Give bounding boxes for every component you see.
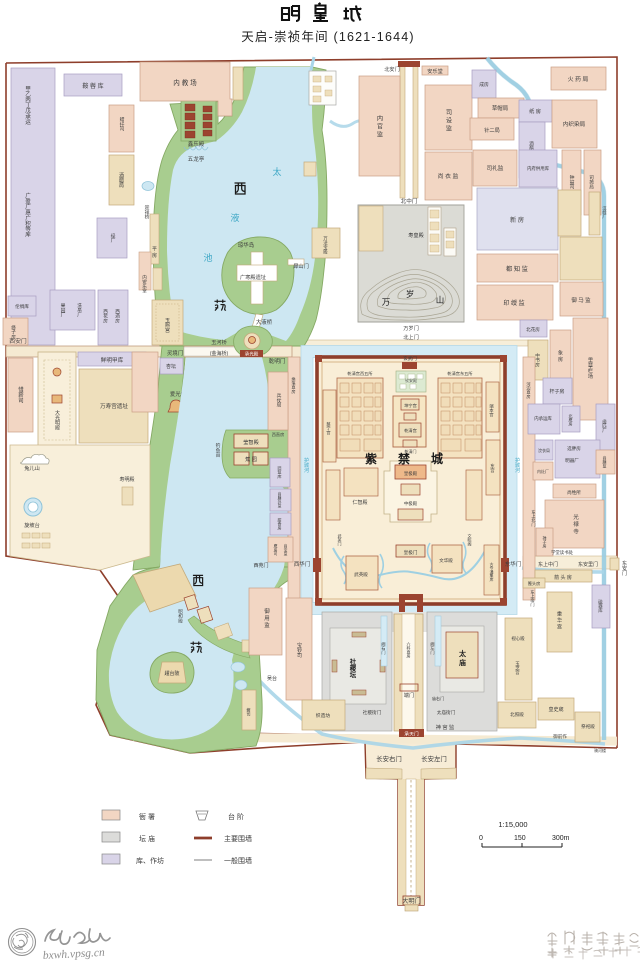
- svg-text:台 阶: 台 阶: [228, 812, 244, 821]
- svg-text:乘笔直房: 乘笔直房: [291, 375, 297, 395]
- svg-text:乾明门: 乾明门: [269, 357, 286, 365]
- svg-text:尚牲所: 尚牲所: [567, 489, 581, 496]
- svg-text:蕉 园: 蕉 园: [245, 455, 257, 463]
- svg-text:东上南门: 东上南门: [531, 588, 536, 608]
- svg-text:选胖房: 选胖房: [567, 445, 581, 452]
- svg-text:1:15,000: 1:15,000: [498, 820, 527, 829]
- svg-text:玉芝宫: 玉芝宫: [515, 661, 521, 676]
- svg-text:玉熙宫: 玉熙宫: [164, 318, 170, 334]
- svg-text:箭 头 房: 箭 头 房: [554, 574, 572, 581]
- svg-text:岁: 岁: [406, 289, 415, 299]
- svg-text:惜薪司: 惜薪司: [17, 386, 24, 404]
- svg-text:禁: 禁: [398, 451, 410, 466]
- svg-text:紫: 紫: [365, 451, 377, 466]
- svg-text:东上北门: 东上北门: [531, 508, 537, 528]
- svg-text:玄武门: 玄武门: [403, 355, 417, 362]
- svg-text:广盈广惠广积等库: 广盈广惠广积等库: [24, 192, 31, 239]
- svg-text:纸 房: 纸 房: [529, 107, 541, 115]
- svg-text:庙右门: 庙右门: [432, 695, 445, 702]
- svg-text:视心殿: 视心殿: [511, 635, 525, 642]
- svg-text:内 官 监: 内 官 监: [376, 114, 383, 137]
- svg-text:天启-崇祯年间 (1621-1644): 天启-崇祯年间 (1621-1644): [241, 30, 415, 44]
- svg-text:昭和殿: 昭和殿: [178, 609, 184, 624]
- svg-text:中极殿: 中极殿: [404, 500, 418, 507]
- svg-text:0: 0: [479, 835, 483, 842]
- svg-text:东华门: 东华门: [505, 560, 521, 568]
- svg-text:鲜明甲库: 鲜明甲库: [101, 356, 124, 364]
- svg-text:万岁门: 万岁门: [403, 324, 419, 332]
- svg-text:仁智殿: 仁智殿: [352, 499, 367, 506]
- svg-text:缎匹厂: 缎匹厂: [602, 418, 608, 434]
- svg-text:长安左门: 长安左门: [421, 754, 447, 763]
- svg-text:皇极门: 皇极门: [404, 549, 418, 556]
- svg-text:东安门: 东安门: [621, 560, 627, 577]
- svg-text:池: 池: [203, 252, 212, 263]
- svg-text:磁器库: 磁器库: [598, 598, 604, 614]
- svg-text:端门: 端门: [404, 691, 414, 699]
- svg-text:300m: 300m: [552, 835, 570, 842]
- svg-text:伦绸库: 伦绸库: [15, 303, 29, 310]
- svg-text:甜食房: 甜食房: [278, 517, 283, 531]
- svg-text:衙 署: 衙 署: [139, 812, 155, 821]
- svg-text:成房: 成房: [479, 81, 489, 88]
- svg-text:山: 山: [436, 295, 445, 305]
- svg-text:织造坊: 织造坊: [316, 712, 331, 719]
- svg-text:甲乙丙丁戊承运: 甲乙丙丁戊承运: [24, 85, 31, 126]
- svg-text:寿明殿: 寿明殿: [119, 476, 134, 483]
- svg-text:内府供用库: 内府供用库: [527, 165, 550, 172]
- svg-text:内灶厂: 内灶厂: [537, 468, 549, 474]
- svg-text:鞍 辔 库: 鞍 辔 库: [82, 82, 103, 90]
- svg-text:太 庙: 太 庙: [458, 649, 466, 667]
- svg-text:内 教 场: 内 教 场: [173, 78, 197, 87]
- svg-text:护城河: 护城河: [514, 457, 520, 473]
- svg-text:犀山门: 犀山门: [293, 262, 309, 270]
- svg-text:广寒殿遗址: 广寒殿遗址: [240, 273, 266, 281]
- svg-text:尚宝监: 尚宝监: [283, 544, 288, 556]
- svg-text:河边直房: 河边直房: [526, 380, 532, 400]
- svg-text:绦子房: 绦子房: [11, 324, 17, 340]
- svg-text:北上门: 北上门: [403, 333, 419, 341]
- svg-text:万寿宫遗址: 万寿宫遗址: [100, 402, 128, 410]
- svg-text:东上中门: 东上中门: [538, 561, 558, 568]
- svg-text:乾清宫东五所: 乾清宫东五所: [447, 370, 472, 377]
- svg-text:篦头房: 篦头房: [528, 580, 541, 587]
- svg-text:(金海桥): (金海桥): [210, 350, 229, 357]
- svg-text:新 房: 新 房: [510, 216, 524, 224]
- svg-text:阙右门: 阙右门: [382, 640, 387, 655]
- svg-text:北照殿: 北照殿: [510, 711, 524, 718]
- svg-text:琼华岛: 琼华岛: [238, 241, 254, 249]
- svg-text:都 知 监: 都 知 监: [506, 265, 528, 273]
- svg-text:东宫: 东宫: [490, 462, 496, 473]
- svg-text:重 华 宫: 重 华 宫: [556, 609, 562, 630]
- svg-text:150: 150: [514, 835, 526, 842]
- svg-text:北安门: 北安门: [384, 65, 400, 73]
- svg-text:钓鱼台: 钓鱼台: [215, 442, 220, 459]
- svg-text:里草栏场: 里草栏场: [587, 357, 593, 380]
- svg-text:司礼监: 司礼监: [487, 164, 504, 172]
- svg-text:文昭阁: 文昭阁: [468, 533, 473, 547]
- svg-text:北花房: 北花房: [526, 326, 540, 333]
- svg-text:大液桥: 大液桥: [256, 318, 273, 326]
- svg-text:御 用 监: 御 用 监: [263, 607, 270, 628]
- svg-text:旧监库: 旧监库: [278, 464, 283, 479]
- svg-text:主要围墙: 主要围墙: [224, 834, 252, 843]
- svg-text:万法宝殿: 万法宝殿: [323, 236, 329, 255]
- svg-text:坤宁宫: 坤宁宫: [404, 402, 417, 409]
- svg-text:武英殿: 武英殿: [354, 571, 368, 578]
- svg-text:兔儿山: 兔儿山: [24, 464, 40, 472]
- svg-text:针二局: 针二局: [484, 126, 500, 134]
- svg-text:鹰房司: 鹰房司: [273, 544, 278, 557]
- svg-text:西直房: 西直房: [272, 431, 285, 438]
- svg-text:阙左门: 阙左门: [431, 640, 436, 655]
- svg-text:旋坡台: 旋坡台: [24, 521, 40, 529]
- svg-text:液: 液: [230, 212, 239, 223]
- svg-text:光 禄 寺: 光 禄 寺: [572, 513, 579, 534]
- svg-text:经厂: 经厂: [110, 232, 115, 244]
- svg-text:吴台: 吴台: [267, 675, 277, 682]
- svg-text:武英门: 武英门: [338, 533, 343, 547]
- svg-text:寿皇殿: 寿皇殿: [408, 231, 424, 239]
- svg-text:御前作: 御前作: [553, 733, 567, 740]
- svg-text:汉经厂: 汉经厂: [602, 204, 608, 219]
- svg-text:尚膳外监: 尚膳外监: [277, 492, 282, 508]
- svg-text:西安门: 西安门: [9, 337, 27, 345]
- svg-text:骑河楼: 骑河楼: [594, 747, 606, 753]
- svg-text:古今通集库: 古今通集库: [489, 562, 494, 582]
- svg-text:社稷街门: 社稷街门: [363, 709, 382, 716]
- svg-text:尚 衣 监: 尚 衣 监: [438, 172, 459, 180]
- svg-text:趯台陂: 趯台陂: [164, 670, 179, 677]
- svg-text:城: 城: [431, 451, 443, 466]
- svg-text:杆子房: 杆子房: [549, 388, 564, 395]
- svg-text:北鹰房: 北鹰房: [569, 413, 574, 427]
- svg-text:内承运库: 内承运库: [534, 415, 552, 422]
- svg-text:神 宫 监: 神 宫 监: [436, 723, 454, 731]
- svg-text:北中门: 北中门: [401, 197, 418, 205]
- svg-text:五龙亭: 五龙亭: [188, 155, 205, 163]
- svg-text:大光明殿: 大光明殿: [54, 409, 60, 431]
- svg-text:西花房: 西花房: [103, 309, 109, 324]
- svg-text:承天门: 承天门: [404, 731, 419, 738]
- svg-text:兵仗局: 兵仗局: [276, 392, 281, 409]
- svg-text:钟鼓司: 钟鼓司: [569, 174, 574, 190]
- svg-text:六科直房: 六科直房: [407, 641, 412, 659]
- svg-text:内安乐堂: 内安乐堂: [142, 274, 148, 294]
- svg-text:承光殿: 承光殿: [245, 351, 259, 358]
- svg-text:钦安殿: 钦安殿: [405, 377, 417, 383]
- svg-text:皇极殿: 皇极殿: [404, 470, 418, 477]
- svg-text:中书房: 中书房: [535, 352, 541, 368]
- svg-text:浣衣局: 浣衣局: [538, 447, 550, 453]
- svg-text:酱司: 酱司: [247, 706, 252, 716]
- svg-text:东安里门: 东安里门: [578, 561, 598, 568]
- svg-text:安乐堂: 安乐堂: [427, 67, 443, 75]
- svg-text:玉河桥: 玉河桥: [211, 338, 227, 346]
- svg-text:大明门: 大明门: [402, 897, 421, 905]
- svg-text:坛 庙: 坛 庙: [139, 834, 155, 843]
- svg-text:社稷坛: 社稷坛: [349, 657, 357, 679]
- svg-text:护城河: 护城河: [303, 457, 309, 473]
- svg-text:司 设 监: 司 设 监: [445, 109, 452, 131]
- svg-text:西苑门: 西苑门: [253, 562, 268, 569]
- svg-text:平 房: 平 房: [151, 246, 157, 259]
- svg-text:果园厂: 果园厂: [60, 303, 65, 319]
- svg-text:乾清宫: 乾清宫: [404, 427, 417, 434]
- svg-text:一般围墙: 一般围墙: [224, 856, 252, 865]
- svg-text:万: 万: [382, 297, 391, 307]
- svg-text:司苑局: 司苑局: [589, 175, 595, 190]
- svg-text:蜡扦司: 蜡扦司: [119, 116, 124, 132]
- svg-text:祭祀殿: 祭祀殿: [581, 723, 595, 730]
- svg-text:尚膳监: 尚膳监: [603, 455, 608, 468]
- svg-text:文华殿: 文华殿: [439, 557, 453, 564]
- svg-text:长安右门: 长安右门: [376, 754, 402, 763]
- svg-text:库、作坊: 库、作坊: [136, 856, 164, 865]
- svg-text:莹智殿: 莹智殿: [243, 438, 259, 446]
- svg-text:乾清宫西五所: 乾清宫西五所: [347, 370, 372, 377]
- svg-text:掸子房: 掸子房: [543, 535, 548, 549]
- svg-text:学堂读书处: 学堂读书处: [551, 549, 574, 556]
- svg-text:印 绶 监: 印 绶 监: [503, 299, 524, 307]
- svg-text:皇史宬: 皇史宬: [548, 706, 563, 713]
- svg-text:灵境门: 灵境门: [167, 349, 183, 357]
- svg-text:草帽局: 草帽局: [492, 104, 508, 112]
- svg-text:内织染局: 内织染局: [563, 120, 586, 128]
- svg-text:酒醋局: 酒醋局: [118, 172, 124, 189]
- svg-text:象 房: 象 房: [557, 350, 563, 363]
- svg-text:慈宁宫: 慈宁宫: [327, 420, 332, 435]
- svg-text:迎祥桥: 迎祥桥: [144, 204, 149, 221]
- svg-text:杏坛: 杏坛: [166, 363, 176, 370]
- svg-text:火 药 局: 火 药 局: [568, 75, 589, 83]
- svg-text:宝钞司: 宝钞司: [296, 642, 302, 658]
- svg-text:洗帛厂: 洗帛厂: [77, 302, 83, 318]
- svg-text:西酒房: 西酒房: [115, 309, 121, 324]
- svg-text:西华门: 西华门: [294, 560, 310, 568]
- svg-text:端本宫: 端本宫: [489, 402, 495, 417]
- svg-text:太: 太: [272, 166, 281, 177]
- svg-text:御 马 监: 御 马 监: [571, 296, 591, 304]
- svg-text:太庙街门: 太庙街门: [437, 709, 456, 716]
